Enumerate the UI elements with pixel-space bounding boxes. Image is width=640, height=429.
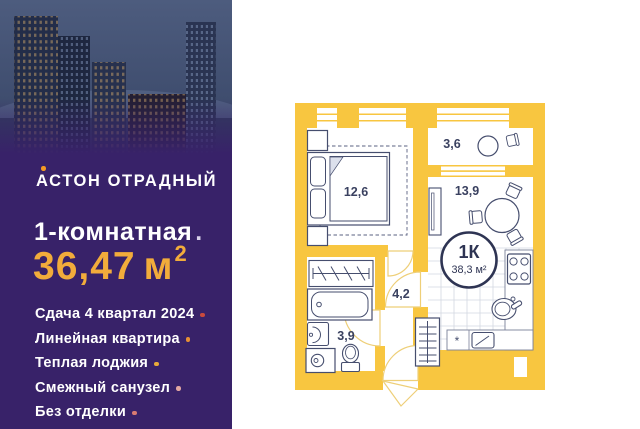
bedroom-door-swing bbox=[388, 251, 413, 276]
chair-icon bbox=[469, 210, 483, 225]
room-area-label-bathroom: 3,9 bbox=[337, 329, 354, 343]
room-area-label-bedroom: 12,6 bbox=[344, 185, 368, 199]
feature-item: Теплая лоджия bbox=[35, 355, 205, 371]
area-value: 36,47 bbox=[33, 245, 136, 288]
toilet-icon bbox=[342, 344, 360, 371]
feature-dot-icon bbox=[176, 386, 181, 391]
apartment-type-badge: 1К 38,3 м² bbox=[442, 233, 497, 288]
info-panel: АСТОН ОТРАДНЫЙ 1-комнатная. 36,47м2 Сдач… bbox=[0, 0, 232, 429]
brand-accent-dot-icon bbox=[41, 166, 46, 171]
floor-plan-area: * 1К 38,3 м² 12,6 3,6 13,9 4,2 3,9 bbox=[232, 0, 640, 429]
chair-icon bbox=[506, 133, 520, 147]
brand-name-text: АСТОН ОТРАДНЫЙ bbox=[36, 172, 217, 190]
dining-table-icon bbox=[485, 199, 519, 233]
bath-sink-icon bbox=[308, 323, 329, 346]
washing-machine-icon bbox=[306, 349, 335, 373]
cabinet-sink-icon bbox=[472, 333, 494, 349]
towel-dryer-icon bbox=[309, 261, 373, 287]
nightstand-icon bbox=[308, 131, 328, 151]
room-area-label-hallway: 4,2 bbox=[392, 287, 409, 301]
mirror-icon bbox=[429, 188, 441, 235]
feature-item: Без отделки bbox=[35, 404, 205, 420]
vent-shaft bbox=[514, 357, 527, 377]
building-photo bbox=[0, 0, 232, 160]
rooms-count-period: . bbox=[195, 218, 202, 246]
feature-item: Смежный санузел bbox=[35, 380, 205, 396]
fridge-mark: * bbox=[455, 334, 460, 348]
feature-item: Линейная квартира bbox=[35, 331, 205, 347]
chair-icon bbox=[505, 182, 523, 199]
room-area-label-loggia: 3,6 bbox=[443, 137, 460, 151]
brand-name: АСТОН ОТРАДНЫЙ bbox=[36, 172, 217, 191]
room-area-label-kitchen-living: 13,9 bbox=[455, 184, 479, 198]
stove-icon bbox=[508, 254, 531, 284]
apartment-area-title: 36,47м2 bbox=[33, 247, 187, 286]
floor-plan: * 1К 38,3 м² 12,6 3,6 13,9 4,2 3,9 bbox=[232, 0, 640, 429]
feature-item: Сдача 4 квартал 2024 bbox=[35, 306, 205, 322]
loggia-furniture bbox=[478, 133, 519, 156]
balcony-table-icon bbox=[478, 136, 498, 156]
feature-dot-icon bbox=[132, 411, 137, 416]
badge-type-label: 1К bbox=[459, 242, 481, 262]
feature-dot-icon bbox=[200, 313, 205, 318]
bathtub-icon bbox=[308, 289, 373, 320]
feature-list: Сдача 4 квартал 2024 Линейная квартира Т… bbox=[35, 306, 205, 429]
feature-dot-icon bbox=[186, 337, 191, 342]
wardrobe-icon bbox=[416, 318, 440, 366]
bathroom-fixtures bbox=[306, 261, 373, 373]
entrance-door-swing bbox=[383, 346, 418, 381]
badge-total-area: 38,3 м² bbox=[451, 264, 486, 276]
nightstand-icon bbox=[308, 227, 328, 246]
area-superscript: 2 bbox=[174, 241, 187, 266]
rooms-count-text: 1-комнатная bbox=[34, 218, 192, 246]
feature-dot-icon bbox=[154, 362, 159, 367]
area-unit: м bbox=[144, 245, 174, 288]
flyer: АСТОН ОТРАДНЫЙ 1-комнатная. 36,47м2 Сдач… bbox=[0, 0, 640, 429]
